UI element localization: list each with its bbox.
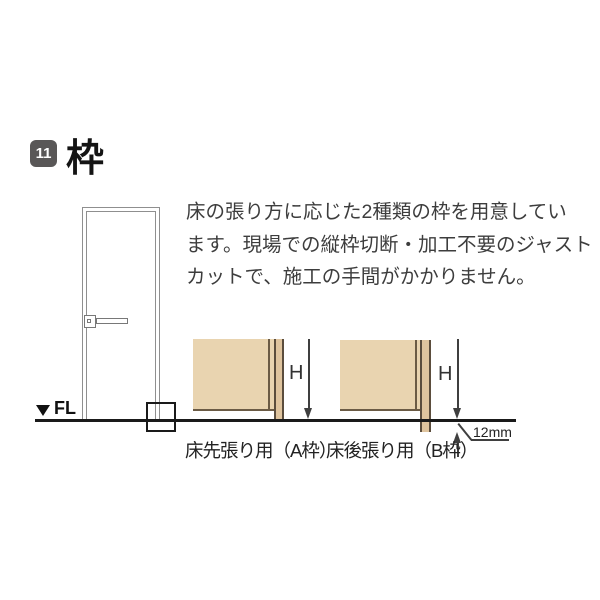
diagram-a-caption: 床先張り用（A枠） bbox=[185, 437, 336, 463]
detail-callout-box bbox=[146, 402, 176, 432]
dimension-line-a bbox=[308, 339, 310, 411]
frame-a-jamb bbox=[274, 339, 284, 420]
intro-line: 床の張り方に応じた2種類の枠を用意してい bbox=[186, 196, 593, 229]
section-number-badge: 11 bbox=[30, 140, 57, 167]
offset-dimension-label: 12mm bbox=[473, 424, 512, 440]
diagram-b-caption: 床後張り用（B枠） bbox=[326, 437, 477, 463]
page-title: 枠 bbox=[66, 127, 105, 182]
wall-bottom-line bbox=[193, 409, 274, 411]
floor-level-triangle-icon bbox=[36, 405, 50, 416]
door-panel-outline bbox=[86, 211, 156, 421]
wall-section-b bbox=[340, 340, 421, 411]
height-dimension-label-a: H bbox=[289, 362, 303, 385]
arrow-down-icon bbox=[453, 408, 461, 419]
floor-level-label: FL bbox=[54, 398, 76, 419]
section-number: 11 bbox=[36, 145, 52, 162]
wall-edge-line bbox=[415, 340, 417, 411]
door-handle-lever bbox=[96, 318, 128, 324]
floor-level-line bbox=[35, 419, 516, 422]
wall-edge-line bbox=[268, 339, 270, 411]
intro-line: カットで、施工の手間がかかりません。 bbox=[186, 261, 593, 294]
wall-section-a bbox=[193, 339, 274, 411]
arrow-down-icon bbox=[304, 408, 312, 419]
catalog-page: 11 枠 床の張り方に応じた2種類の枠を用意してい ます。現場での縦枠切断・加工… bbox=[0, 0, 600, 600]
intro-paragraph: 床の張り方に応じた2種類の枠を用意してい ます。現場での縦枠切断・加工不要のジャ… bbox=[186, 196, 593, 294]
wall-bottom-line bbox=[340, 409, 421, 411]
dimension-line-b bbox=[457, 339, 459, 411]
intro-line: ます。現場での縦枠切断・加工不要のジャスト bbox=[186, 229, 593, 262]
door-handle-axis bbox=[87, 319, 91, 323]
height-dimension-label-b: H bbox=[438, 363, 452, 386]
